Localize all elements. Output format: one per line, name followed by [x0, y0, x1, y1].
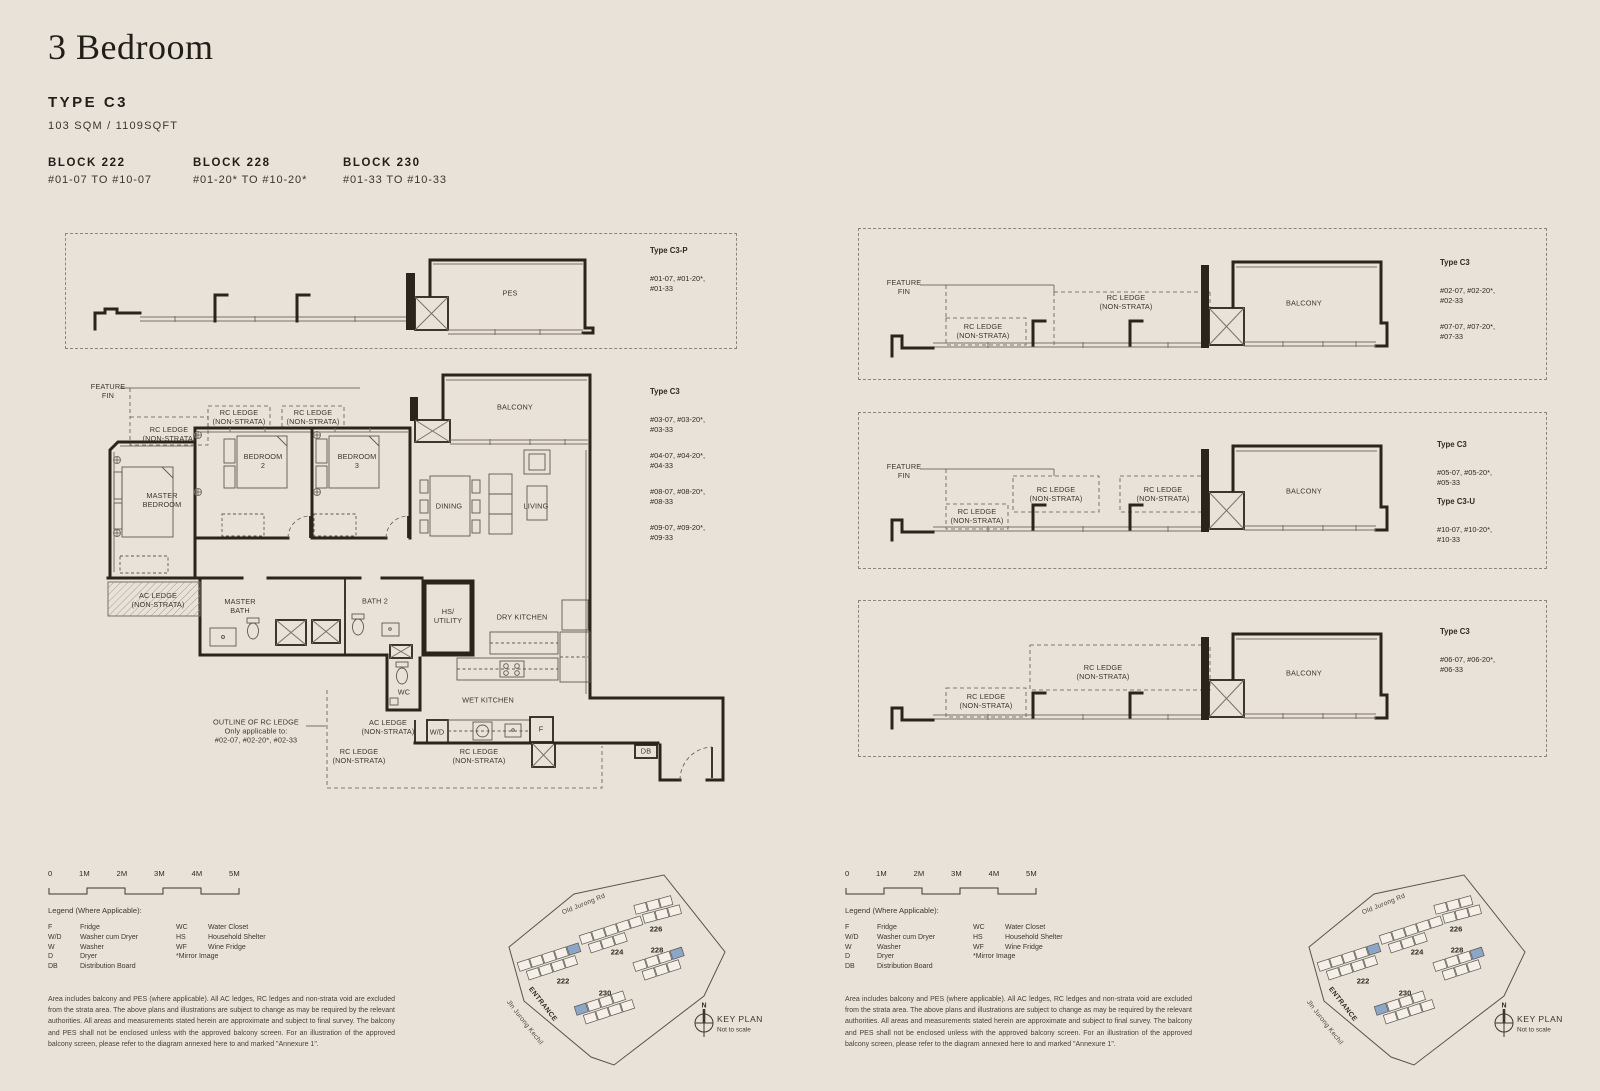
scale-bar: [845, 886, 1037, 896]
unit-list-title: Type C3: [1437, 440, 1541, 450]
toilet-icon: [352, 614, 364, 635]
unit-list-units: #10-07, #10-20*, #10-33: [1437, 525, 1541, 544]
scale-tick: 0: [845, 869, 849, 878]
ac-shaft-icon: [415, 297, 448, 330]
key-plan-subtitle: Not to scale: [717, 1027, 751, 1034]
legend-abbr: WC: [176, 924, 208, 931]
block-230-range: #01-33 TO #10-33: [343, 174, 447, 186]
cluster-222: [517, 943, 584, 982]
legend-mirror-note: *Mirror Image: [176, 953, 218, 960]
legend-abbr: HS: [973, 934, 1005, 941]
unit-list-title: Type C3: [650, 387, 742, 397]
ac-shaft-icon: [390, 645, 412, 658]
legend-column-2: WCWater Closet HSHousehold Shelter WFWin…: [176, 924, 266, 963]
legend-label: Dryer: [80, 953, 97, 960]
pes-plan-drawing: [65, 233, 736, 348]
scale-tick: 5M: [1026, 869, 1037, 878]
block-222-name: BLOCK 222: [48, 157, 126, 169]
label-fridge: F: [539, 724, 544, 733]
unit-list-title: Type C3: [1440, 627, 1544, 637]
unit-list-units: #06-07, #06-20*, #06-33: [1440, 655, 1544, 674]
unit-list-units: #08-07, #08-20*, #08-33: [650, 487, 742, 506]
block-number: 230: [1399, 989, 1412, 998]
scale-tick: 2M: [913, 869, 924, 878]
legend-label: Washer cum Dryer: [877, 934, 935, 941]
block-222-range: #01-07 TO #10-07: [48, 174, 152, 186]
label-rc-ledge: RC LEDGE (NON-STRATA): [1100, 293, 1153, 311]
label-rc-ledge: RC LEDGE (NON-STRATA): [453, 747, 506, 765]
sink-icon: [210, 628, 236, 646]
label-living: LIVING: [524, 501, 549, 510]
block-228-name: BLOCK 228: [193, 157, 271, 169]
ac-shaft-icon: [276, 620, 306, 645]
legend-label: Washer: [877, 944, 901, 951]
key-plan-map: [1284, 853, 1559, 1068]
scale-tick: 0: [48, 869, 52, 878]
unit-list-units: #01-07, #01-20*, #01-33: [650, 274, 734, 293]
label-bath-2: BATH 2: [362, 596, 388, 605]
label-bedroom-3: BEDROOM 3: [338, 452, 377, 470]
unit-list-title: Type C3-P: [650, 246, 734, 256]
scale-tick: 3M: [154, 869, 165, 878]
north-arrow-icon: [695, 1009, 713, 1037]
north-label: N: [701, 1003, 706, 1010]
block-230-name: BLOCK 230: [343, 157, 421, 169]
unit-list-section1: Type C3 #02-07, #02-20*, #02-33 #07-07, …: [1440, 248, 1544, 351]
unit-list-main: Type C3 #03-07, #03-20*, #03-33 #04-07, …: [650, 377, 742, 552]
legend-label: Water Closet: [1005, 924, 1045, 931]
block-number: 228: [651, 946, 664, 955]
label-wet-kitchen: WET KITCHEN: [462, 695, 514, 704]
wall-joint-icons: [114, 432, 321, 537]
unit-type-title: TYPE C3: [48, 94, 128, 111]
unit-list-title: Type C3-U: [1437, 497, 1541, 507]
label-hs-utility: HS/ UTILITY: [434, 607, 462, 625]
label-rc-ledge: RC LEDGE (NON-STRATA): [1030, 485, 1083, 503]
legend-abbr: HS: [176, 934, 208, 941]
label-ac-ledge: AC LEDGE (NON-STRATA): [362, 718, 415, 736]
label-bedroom-2: BEDROOM 2: [244, 452, 283, 470]
label-rc-ledge: RC LEDGE (NON-STRATA): [287, 408, 340, 426]
legend-abbr: WC: [973, 924, 1005, 931]
legend-label: Distribution Board: [80, 963, 136, 970]
ac-shaft-icon: [532, 743, 555, 767]
label-balcony: BALCONY: [1286, 668, 1322, 677]
unit-list-units: #04-07, #04-20*, #04-33: [650, 451, 742, 470]
scale-tick: 1M: [79, 869, 90, 878]
legend-abbr: F: [845, 924, 877, 931]
block-number: 222: [557, 977, 570, 986]
label-feature-fin: FEATURE FIN: [91, 382, 126, 400]
block-number: 224: [611, 948, 624, 957]
label-balcony: BALCONY: [497, 402, 533, 411]
legend-label: Wine Fridge: [208, 944, 246, 951]
page-title: 3 Bedroom: [48, 26, 213, 68]
label-pes: PES: [502, 288, 517, 297]
label-outline-note: OUTLINE OF RC LEDGE Only applicable to: …: [213, 717, 299, 744]
entrance-door-icon: [680, 747, 712, 780]
unit-list-units: #02-07, #02-20*, #02-33: [1440, 286, 1544, 305]
label-feature-fin: FEATURE FIN: [887, 462, 922, 480]
scale-bar-numbers: 0 1M 2M 3M 4M 5M: [48, 869, 240, 878]
label-dry-kitchen: DRY KITCHEN: [497, 612, 548, 621]
label-ac-ledge: AC LEDGE (NON-STRATA): [132, 591, 185, 609]
ac-shaft-icon: [1209, 492, 1244, 529]
legend-title: Legend (Where Applicable):: [845, 906, 939, 915]
key-plan-title: KEY PLAN: [1517, 1014, 1563, 1024]
unit-list-units: #07-07, #07-20*, #07-33: [1440, 322, 1544, 341]
label-rc-ledge: RC LEDGE (NON-STRATA): [333, 747, 386, 765]
legend-label: Fridge: [877, 924, 897, 931]
block-number: 222: [1357, 977, 1370, 986]
unit-list-title: Type C3: [1440, 258, 1544, 268]
label-rc-ledge: RC LEDGE (NON-STRATA): [1077, 663, 1130, 681]
legend-column-1: FFridge W/DWasher cum Dryer WWasher DDry…: [48, 924, 138, 973]
label-dining: DINING: [436, 501, 462, 510]
legend-label: Distribution Board: [877, 963, 933, 970]
legend-abbr: W: [845, 944, 877, 951]
legend-label: Wine Fridge: [1005, 944, 1043, 951]
disclaimer-text: Area includes balcony and PES (where app…: [48, 994, 395, 1050]
unit-list-units: #03-07, #03-20*, #03-33: [650, 415, 742, 434]
legend-label: Dryer: [877, 953, 894, 960]
label-balcony: BALCONY: [1286, 486, 1322, 495]
unit-list-pes: Type C3-P #01-07, #01-20*, #01-33: [650, 236, 734, 303]
block-number: 226: [1450, 925, 1463, 934]
block-number: 224: [1411, 948, 1424, 957]
legend-abbr: F: [48, 924, 80, 931]
unit-list-section3: Type C3 #06-07, #06-20*, #06-33: [1440, 617, 1544, 684]
label-master-bedroom: MASTER BEDROOM: [143, 491, 182, 509]
ac-shaft-icon: [1209, 680, 1244, 717]
legend-abbr: W: [48, 944, 80, 951]
legend-abbr: WF: [176, 944, 208, 951]
scale-tick: 2M: [116, 869, 127, 878]
sink-icon: [382, 623, 399, 636]
legend-mirror-note: *Mirror Image: [973, 953, 1015, 960]
scale-tick: 4M: [191, 869, 202, 878]
label-rc-ledge: RC LEDGE (NON-STRATA): [1137, 485, 1190, 503]
unit-list-units: #09-07, #09-20*, #09-33: [650, 523, 742, 542]
tv-console: [524, 450, 550, 474]
legend-title: Legend (Where Applicable):: [48, 906, 142, 915]
label-wc: WC: [398, 687, 410, 696]
ac-shaft-icon: [415, 420, 450, 442]
legend-label: Water Closet: [208, 924, 248, 931]
legend-abbr: D: [845, 953, 877, 960]
label-rc-ledge: RC LEDGE (NON-STRATA): [213, 408, 266, 426]
label-rc-ledge: RC LEDGE (NON-STRATA): [951, 507, 1004, 525]
legend-abbr: DB: [48, 963, 80, 970]
legend-abbr: W/D: [48, 934, 80, 941]
legend-abbr: WF: [973, 944, 1005, 951]
scale-tick: 3M: [951, 869, 962, 878]
sofa: [489, 474, 512, 534]
legend-label: Washer: [80, 944, 104, 951]
toilet-icon: [390, 662, 408, 705]
label-distribution-board: DB: [641, 746, 651, 755]
block-number: 230: [599, 989, 612, 998]
scale-tick: 1M: [876, 869, 887, 878]
label-washer-dryer: W/D: [430, 727, 445, 736]
ac-shaft-icon: [1209, 308, 1244, 345]
north-label: N: [1501, 1003, 1506, 1010]
disclaimer-text: Area includes balcony and PES (where app…: [845, 994, 1192, 1050]
label-rc-ledge: RC LEDGE (NON-STRATA): [143, 425, 196, 443]
key-plan-map: [484, 853, 759, 1068]
block-228-range: #01-20* TO #10-20*: [193, 174, 307, 186]
label-feature-fin: FEATURE FIN: [887, 278, 922, 296]
block-number: 228: [1451, 946, 1464, 955]
legend-label: Household Shelter: [1005, 934, 1063, 941]
unit-area: 103 SQM / 1109SQFT: [48, 120, 178, 132]
block-number: 226: [650, 925, 663, 934]
scale-tick: 4M: [988, 869, 999, 878]
legend-label: Household Shelter: [208, 934, 266, 941]
scale-bar-numbers: 0 1M 2M 3M 4M 5M: [845, 869, 1037, 878]
label-rc-ledge: RC LEDGE (NON-STRATA): [957, 322, 1010, 340]
unit-list-section2b: Type C3-U #10-07, #10-20*, #10-33: [1437, 487, 1541, 554]
unit-list-units: #05-07, #05-20*, #05-33: [1437, 468, 1541, 487]
legend-abbr: DB: [845, 963, 877, 970]
scale-bar: [48, 886, 240, 896]
legend-label: Washer cum Dryer: [80, 934, 138, 941]
key-plan-title: KEY PLAN: [717, 1014, 763, 1024]
legend-column-2: WCWater Closet HSHousehold Shelter WFWin…: [973, 924, 1063, 963]
legend-label: Fridge: [80, 924, 100, 931]
legend-abbr: D: [48, 953, 80, 960]
label-rc-ledge: RC LEDGE (NON-STRATA): [960, 692, 1013, 710]
key-plan-subtitle: Not to scale: [1517, 1027, 1551, 1034]
label-balcony: BALCONY: [1286, 298, 1322, 307]
toilet-icon: [247, 618, 259, 639]
legend-column-1: FFridge W/DWasher cum Dryer WWasher DDry…: [845, 924, 935, 973]
legend-abbr: W/D: [845, 934, 877, 941]
ac-shaft-icon: [312, 620, 340, 643]
scale-tick: 5M: [229, 869, 240, 878]
label-master-bath: MASTER BATH: [224, 597, 255, 615]
